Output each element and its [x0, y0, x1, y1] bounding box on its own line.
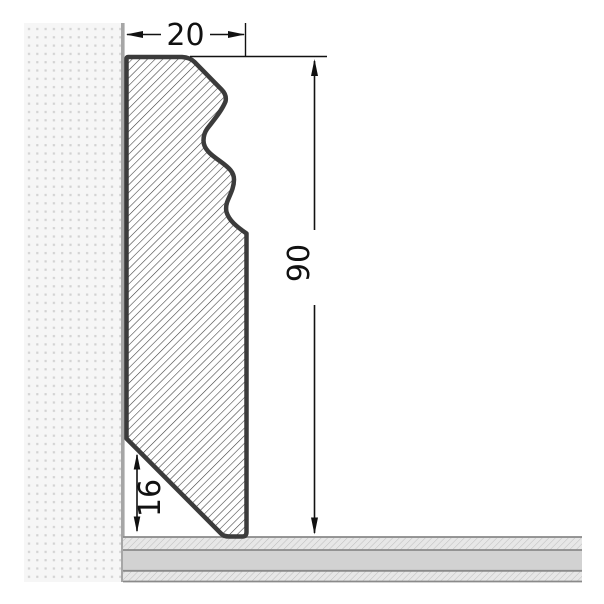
arrowhead-left: [126, 31, 143, 38]
arrowhead-up: [311, 59, 318, 76]
floor-section: [123, 537, 582, 582]
arrowhead-down: [311, 518, 318, 535]
dimension-height-value: 90: [282, 244, 317, 282]
floor-top-layer: [123, 538, 582, 550]
arrowhead-up: [134, 454, 141, 470]
wall-edge-line: [121, 23, 125, 582]
wall-section: [24, 23, 125, 582]
dimension-width: 20: [126, 18, 246, 57]
skirting-profile-drawing: 20 90 16: [0, 0, 604, 604]
wall-surface: [24, 23, 121, 582]
dimension-width-value: 20: [166, 18, 204, 53]
dimension-bevel-value: 16: [133, 479, 168, 517]
arrowhead-down: [134, 517, 141, 533]
floor-bottom-layer: [123, 572, 582, 582]
arrowhead-right: [228, 31, 245, 38]
skirting-profile-shape: [127, 57, 247, 537]
technical-drawing-canvas: 20 90 16: [0, 0, 604, 604]
